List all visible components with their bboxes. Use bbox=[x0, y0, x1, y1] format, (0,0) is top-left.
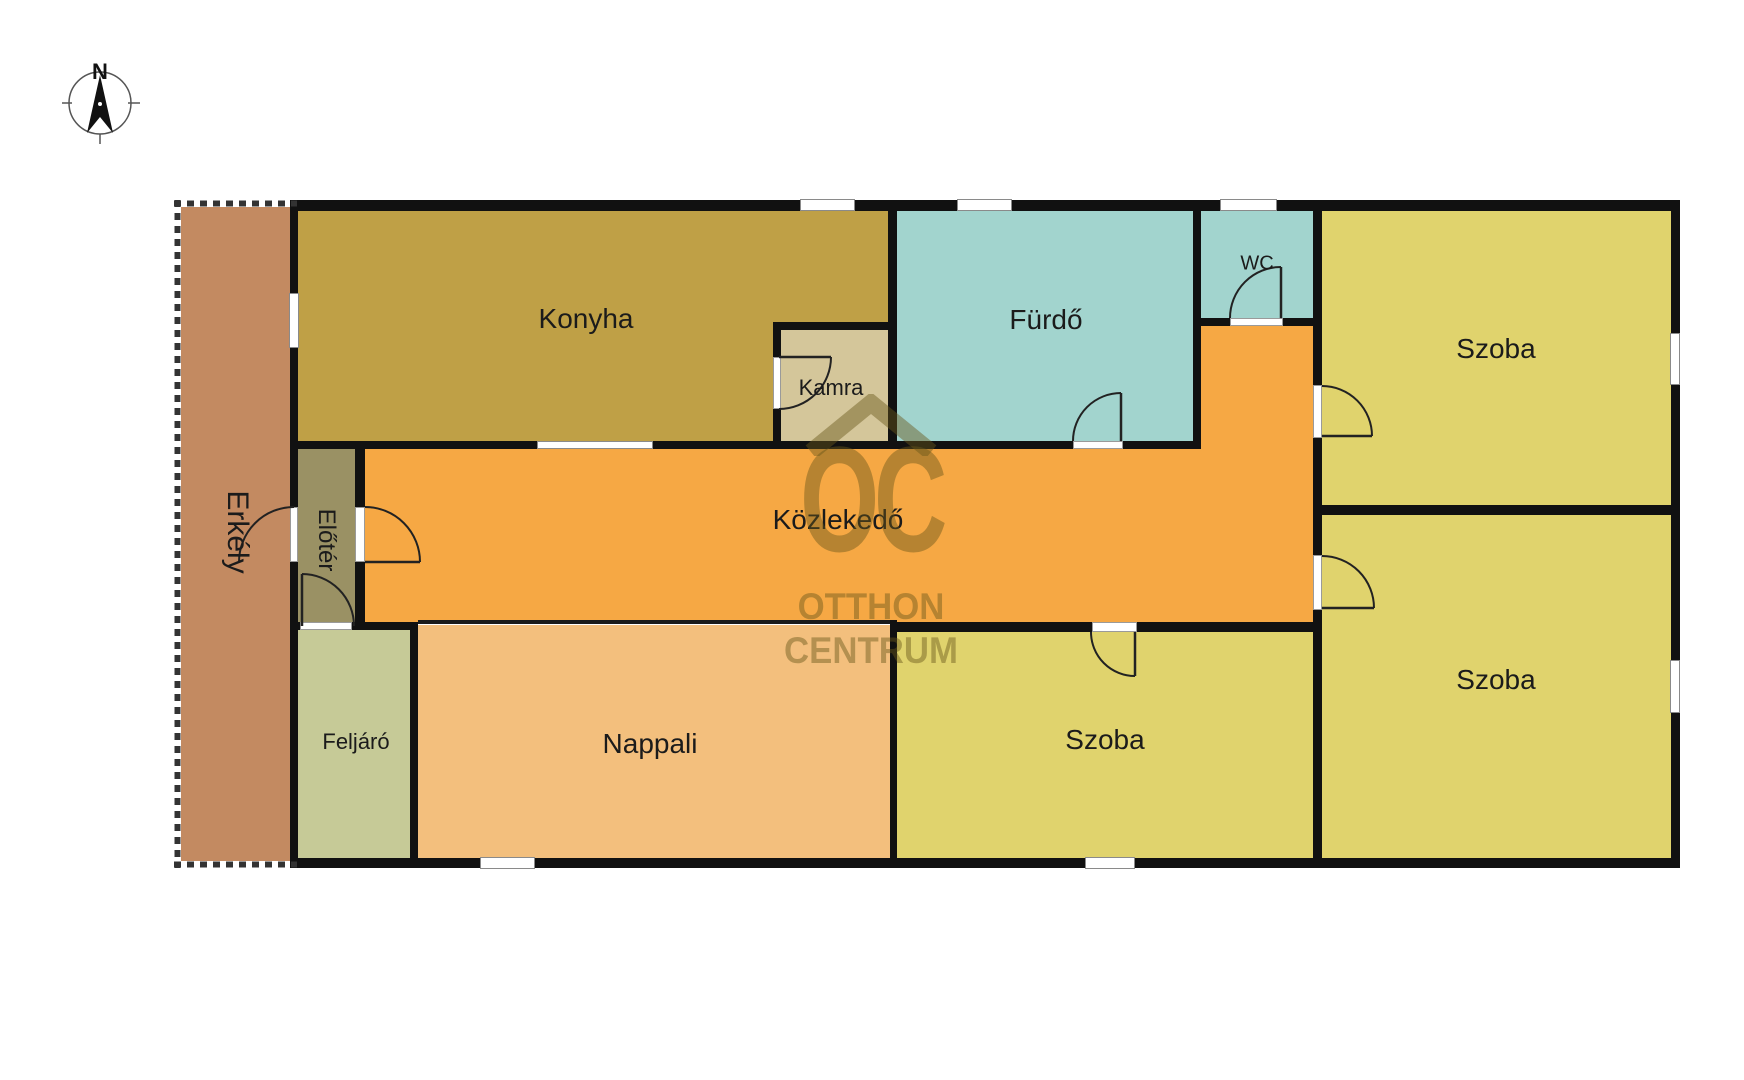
wall bbox=[773, 322, 897, 330]
wall bbox=[1671, 200, 1680, 868]
window-symbol bbox=[289, 293, 299, 348]
compass-rose: N bbox=[52, 48, 162, 158]
room-label-erkely: Erkély bbox=[220, 490, 254, 573]
room-label-szoba-felso: Szoba bbox=[1456, 333, 1535, 365]
door-opening bbox=[355, 507, 365, 562]
compass-pivot bbox=[98, 102, 102, 106]
window-symbol bbox=[1220, 199, 1277, 211]
compass-north-label: N bbox=[92, 59, 108, 84]
window-symbol bbox=[957, 199, 1012, 211]
window-symbol bbox=[1670, 333, 1680, 385]
room-label-eloter: Előtér bbox=[312, 509, 340, 572]
balcony-hatch-edge bbox=[174, 200, 297, 207]
window-symbol bbox=[1670, 660, 1680, 713]
door-opening bbox=[300, 622, 352, 630]
window-symbol bbox=[480, 857, 535, 869]
door-opening bbox=[1230, 318, 1283, 326]
window-symbol bbox=[1085, 857, 1135, 869]
door-opening bbox=[1073, 441, 1123, 449]
room-label-szoba-also: Szoba bbox=[1456, 664, 1535, 696]
room-label-feljaro: Feljáró bbox=[322, 729, 389, 755]
watermark-otthon-centrum-logo: OC OTTHON CENTRUM bbox=[731, 394, 1011, 684]
watermark-monogram: OC bbox=[776, 424, 966, 574]
window-symbol bbox=[800, 199, 855, 211]
door-opening bbox=[290, 507, 298, 562]
door-opening bbox=[1313, 385, 1322, 438]
wall bbox=[1313, 200, 1322, 868]
room-label-furdo: Fürdő bbox=[1009, 304, 1082, 336]
floorplan-page: ErkélyKonyhaKamraFürdőWCKözlekedőElőtérF… bbox=[0, 0, 1744, 1080]
room-label-szoba-kozepso: Szoba bbox=[1065, 724, 1144, 756]
balcony-hatch-edge bbox=[174, 861, 297, 868]
room-label-wc: WC bbox=[1240, 253, 1273, 276]
watermark-line1: OTTHON bbox=[739, 586, 1002, 628]
room-label-konyha: Konyha bbox=[539, 303, 634, 335]
window-symbol bbox=[537, 441, 653, 449]
door-opening bbox=[1313, 555, 1322, 610]
watermark-line2: CENTRUM bbox=[739, 630, 1002, 672]
balcony-hatch-edge bbox=[174, 200, 181, 868]
door-opening bbox=[1092, 622, 1137, 632]
room-label-nappali: Nappali bbox=[603, 728, 698, 760]
room-kozlekedo-arm bbox=[1201, 326, 1313, 449]
wall bbox=[410, 622, 418, 868]
wall bbox=[1313, 505, 1680, 515]
